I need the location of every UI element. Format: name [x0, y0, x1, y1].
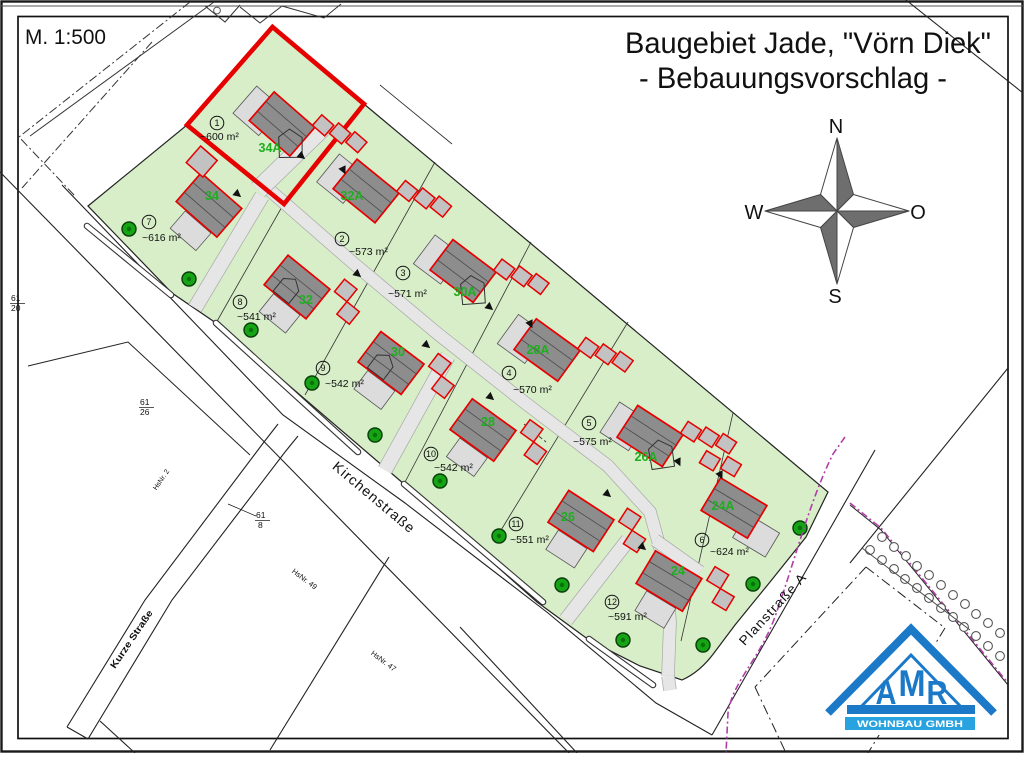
- svg-text:9: 9: [320, 363, 325, 373]
- svg-text:R: R: [927, 674, 948, 711]
- svg-text:24A: 24A: [712, 499, 735, 513]
- svg-text:2: 2: [339, 234, 344, 244]
- svg-text:~542 m²: ~542 m²: [325, 378, 364, 390]
- svg-text:O: O: [910, 202, 926, 224]
- svg-text:8: 8: [258, 520, 263, 530]
- svg-text:~573 m²: ~573 m²: [349, 246, 388, 258]
- svg-text:M: M: [899, 663, 926, 704]
- svg-text:26A: 26A: [635, 450, 658, 464]
- svg-text:~616 m²: ~616 m²: [142, 232, 181, 244]
- svg-text:11: 11: [511, 519, 520, 529]
- svg-text:7: 7: [146, 217, 151, 227]
- svg-text:Baugebiet Jade, "Vörn Diek": Baugebiet Jade, "Vörn Diek": [625, 27, 991, 60]
- svg-text:~624 m²: ~624 m²: [710, 546, 749, 558]
- svg-text:3: 3: [400, 268, 405, 278]
- svg-text:61: 61: [256, 510, 266, 520]
- svg-text:W: W: [745, 202, 764, 224]
- svg-text:M. 1:500: M. 1:500: [25, 26, 106, 49]
- svg-text:A: A: [876, 674, 897, 712]
- svg-text:30: 30: [391, 345, 405, 359]
- svg-text:~575 m²: ~575 m²: [573, 436, 612, 448]
- svg-text:1: 1: [214, 118, 219, 128]
- svg-text:28A: 28A: [527, 343, 550, 357]
- svg-text:26: 26: [561, 510, 575, 524]
- svg-text:8: 8: [237, 297, 242, 307]
- svg-text:~570 m²: ~570 m²: [513, 384, 552, 396]
- svg-text:~541 m²: ~541 m²: [237, 311, 276, 323]
- svg-text:~542 m²: ~542 m²: [434, 462, 473, 474]
- svg-text:~600 m²: ~600 m²: [200, 131, 239, 143]
- svg-text:~571 m²: ~571 m²: [388, 288, 427, 300]
- svg-text:20: 20: [11, 303, 21, 313]
- svg-text:28: 28: [481, 415, 495, 429]
- svg-text:32: 32: [299, 293, 313, 307]
- svg-text:61: 61: [140, 397, 150, 407]
- svg-text:~591 m²: ~591 m²: [608, 611, 647, 623]
- svg-text:32A: 32A: [341, 189, 364, 203]
- svg-text:~551 m²: ~551 m²: [510, 534, 549, 546]
- svg-text:24: 24: [671, 564, 685, 578]
- svg-text:S: S: [828, 286, 841, 308]
- svg-text:12: 12: [607, 597, 617, 607]
- svg-text:6: 6: [699, 535, 704, 545]
- svg-text:WOHNBAU GMBH: WOHNBAU GMBH: [857, 719, 963, 730]
- svg-text:34A: 34A: [259, 141, 282, 155]
- svg-text:10: 10: [426, 449, 436, 459]
- svg-text:- Bebauungsvorschlag -: - Bebauungsvorschlag -: [639, 62, 947, 95]
- svg-text:5: 5: [586, 418, 591, 428]
- svg-text:4: 4: [506, 368, 511, 378]
- svg-text:N: N: [829, 116, 843, 138]
- svg-text:26: 26: [140, 407, 150, 417]
- svg-text:61: 61: [11, 293, 21, 303]
- svg-text:34: 34: [205, 189, 219, 203]
- svg-text:30A: 30A: [454, 285, 477, 299]
